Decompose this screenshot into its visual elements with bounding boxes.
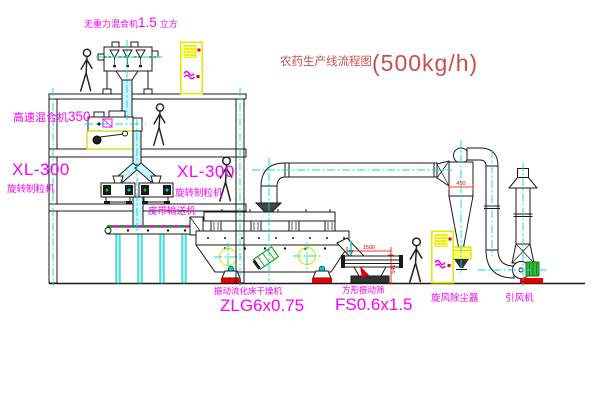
label-screen-name: 方形振动筛 <box>342 286 385 295</box>
outlet-pipe <box>467 148 514 278</box>
label-granulator-left-name: 旋转制粒机 <box>7 185 55 195</box>
granulator-left-machine <box>101 176 135 204</box>
dim-1500: 1500 <box>363 245 375 251</box>
belt-conveyor-machine <box>105 217 203 283</box>
spring-mounts <box>211 221 335 231</box>
person-figure <box>154 104 165 145</box>
label-high-speed-mixer: 高速混合机350 <box>13 109 91 125</box>
label-granulator-right-name: 旋转制粒机 <box>175 189 223 199</box>
label-dryer-model: ZLG6x0.75 <box>220 297 304 314</box>
drawing-title: 农药生产线流程图(500kg/h) <box>280 50 478 77</box>
label-dryer-name: 振动流化床干燥机 <box>214 287 282 296</box>
exhaust-duct <box>256 161 449 212</box>
process-flow-drawing: 1500 541 450 农药生产线流程图(500kg/h) 无重力混合机1.5… <box>0 0 600 403</box>
label-cyclone: 旋风除尘器 <box>431 294 479 304</box>
title-capacity: (500kg/h) <box>372 50 478 76</box>
title-chinese: 农药生产线流程图 <box>280 56 372 68</box>
fluid-bed-dryer-machine <box>196 209 364 283</box>
draft-fan-machine <box>512 244 543 284</box>
granulator-discharge-duct <box>133 197 143 227</box>
person-figure <box>81 49 92 91</box>
label-granulator-right-model: XL-300 <box>177 163 235 180</box>
granulator-right-machine <box>139 176 173 204</box>
label-granulator-left-model: XL-300 <box>12 161 70 178</box>
dim-541: 541 <box>391 264 397 273</box>
label-belt-conveyor: 皮带输送机 <box>148 207 196 217</box>
person-figure <box>410 238 422 282</box>
control-cabinet-right <box>432 231 453 282</box>
label-fan: 引风机 <box>505 294 534 304</box>
control-cabinet-top <box>181 42 202 93</box>
label-zero-gravity-mixer: 无重力混合机1.5立方 <box>84 15 178 31</box>
label-screen-model: FS0.6x1.5 <box>335 296 413 313</box>
